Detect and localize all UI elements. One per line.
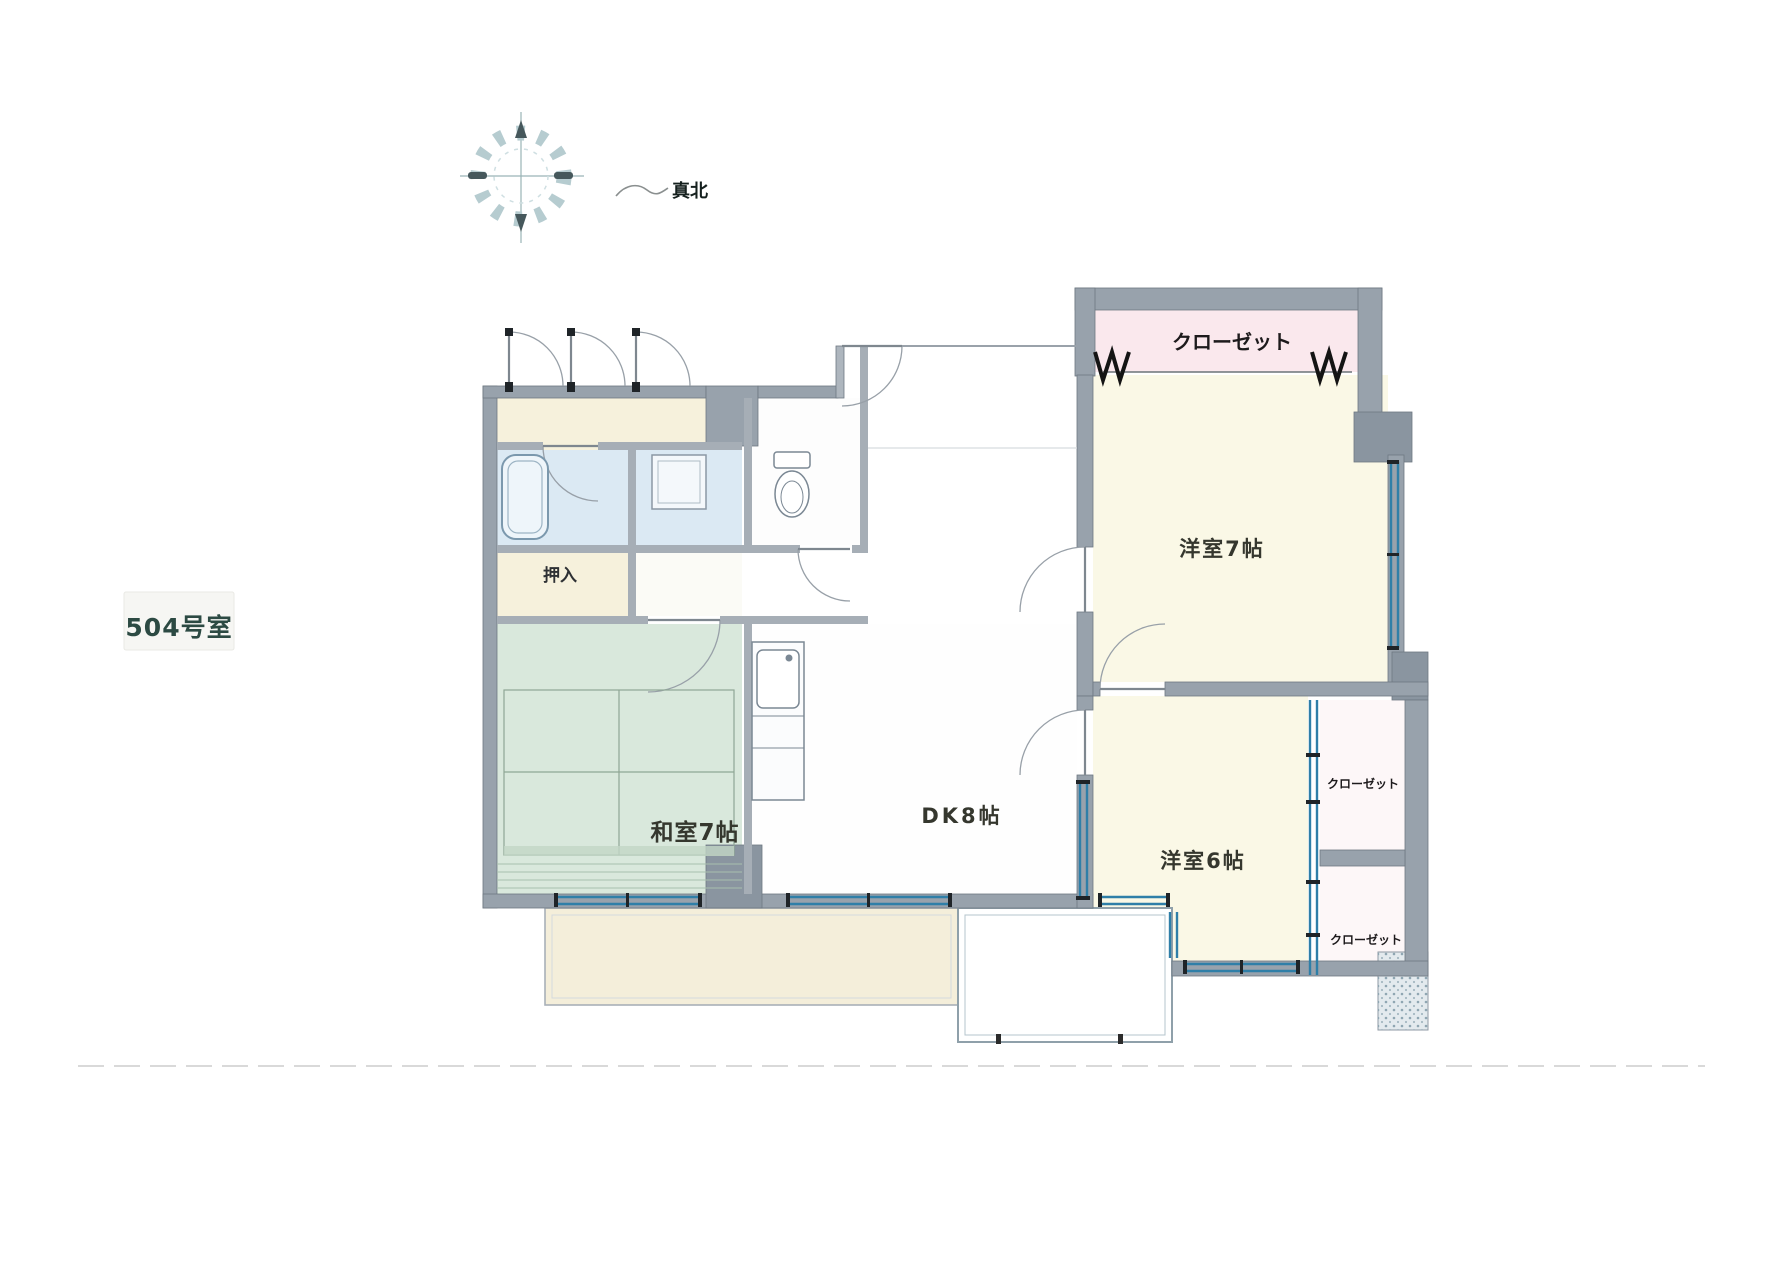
western7-area xyxy=(1093,375,1388,682)
room-label-right-closet-lower: クローゼット xyxy=(1330,932,1402,947)
bathtub-icon xyxy=(502,455,548,539)
balcony-right xyxy=(958,908,1172,1044)
floor-plan-page: 真北 504号室 xyxy=(0,0,1779,1283)
room-label-dk: DK8帖 xyxy=(921,804,1002,828)
unit-number-badge: 504号室 xyxy=(124,592,234,650)
floor-plan-drawing: 真北 504号室 xyxy=(0,0,1779,1283)
balcony-left xyxy=(545,908,958,1005)
room-label-top-closet: クローゼット xyxy=(1172,330,1292,354)
right-closet-upper-area xyxy=(1320,700,1405,850)
true-north-marker: 真北 xyxy=(616,180,708,202)
room-label-oshiire: 押入 xyxy=(543,565,577,586)
room-label-right-closet-upper: クローゼット xyxy=(1327,776,1399,791)
room-fills xyxy=(497,310,1405,975)
room-label-western6: 洋室6帖 xyxy=(1160,849,1246,873)
unit-number-label: 504号室 xyxy=(125,613,232,642)
toilet-area xyxy=(752,398,860,545)
room-label-japanese: 和室7帖 xyxy=(650,819,739,846)
hall-area xyxy=(868,346,1077,622)
true-north-label: 真北 xyxy=(672,180,708,202)
small-closet-area xyxy=(636,553,742,616)
compass-icon xyxy=(460,112,584,243)
room-label-western7: 洋室7帖 xyxy=(1179,537,1265,561)
toilet-icon xyxy=(774,452,810,517)
kitchen-counter-icon xyxy=(752,642,804,800)
washer-pan-icon xyxy=(652,455,706,509)
